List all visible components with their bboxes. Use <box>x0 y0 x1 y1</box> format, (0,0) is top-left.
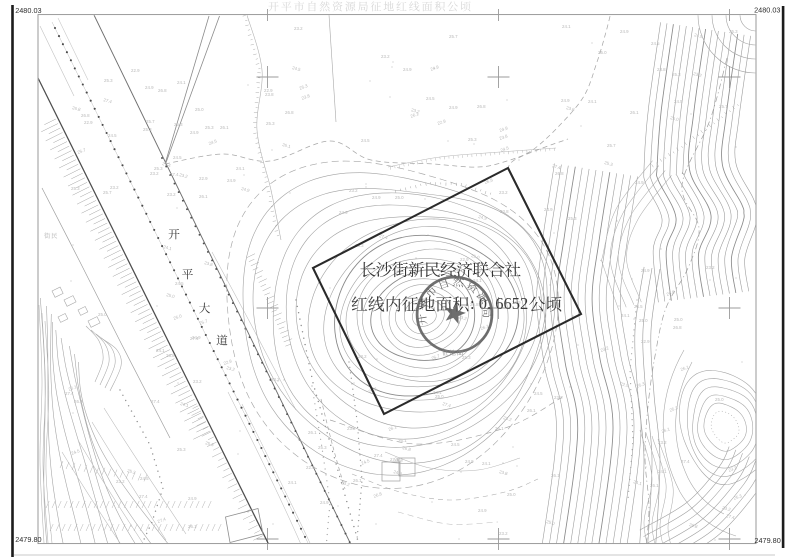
svg-text:26.1: 26.1 <box>388 424 398 432</box>
svg-text:25.0: 25.0 <box>507 492 516 497</box>
svg-text:24.5: 24.5 <box>173 155 182 160</box>
svg-text:24.1: 24.1 <box>288 480 297 485</box>
svg-text:22.9: 22.9 <box>437 118 447 126</box>
svg-text:25.3: 25.3 <box>604 160 614 167</box>
svg-text:24.1: 24.1 <box>633 479 643 486</box>
svg-text:22.9: 22.9 <box>460 257 469 262</box>
svg-text:24.5: 24.5 <box>426 96 435 101</box>
svg-text:25.3: 25.3 <box>468 137 477 142</box>
svg-text:26.1: 26.1 <box>551 473 560 478</box>
svg-text:25.7: 25.7 <box>146 119 155 124</box>
svg-text:24.9: 24.9 <box>499 125 509 133</box>
svg-text:24.9: 24.9 <box>192 335 201 340</box>
svg-text:24.1: 24.1 <box>177 80 186 85</box>
svg-text:26.8: 26.8 <box>373 491 383 499</box>
svg-text:25.3: 25.3 <box>174 122 183 127</box>
svg-text:24.1: 24.1 <box>658 469 667 474</box>
svg-text:26.1: 26.1 <box>650 483 659 488</box>
svg-text:23.2: 23.2 <box>722 505 732 512</box>
svg-text:22.9: 22.9 <box>306 465 315 470</box>
svg-text:26.8: 26.8 <box>166 353 175 358</box>
svg-text:25.3: 25.3 <box>462 355 471 360</box>
svg-text:27.4: 27.4 <box>157 516 167 524</box>
svg-text:24.9: 24.9 <box>635 180 644 185</box>
svg-text:25.0: 25.0 <box>395 195 404 200</box>
svg-text:25.3: 25.3 <box>568 216 577 221</box>
svg-text:26.1: 26.1 <box>680 364 690 372</box>
svg-text:25.0: 25.0 <box>98 312 107 317</box>
svg-text:24.9: 24.9 <box>190 130 199 135</box>
svg-text:27.4: 27.4 <box>103 97 113 104</box>
svg-text:24.9: 24.9 <box>372 195 381 200</box>
svg-text:24.1: 24.1 <box>588 99 597 104</box>
svg-text:25.0: 25.0 <box>166 292 176 299</box>
svg-text:26.1: 26.1 <box>188 524 197 529</box>
svg-text:24.9: 24.9 <box>227 178 236 183</box>
svg-text:23.2: 23.2 <box>706 265 715 270</box>
svg-text:23.8: 23.8 <box>657 67 666 72</box>
svg-text:23.2: 23.2 <box>341 480 351 487</box>
svg-text:25.0: 25.0 <box>598 50 607 55</box>
svg-text:24.9: 24.9 <box>241 186 251 193</box>
svg-text:25.3: 25.3 <box>104 78 113 83</box>
svg-text:24.1: 24.1 <box>433 390 442 395</box>
svg-text:26.1: 26.1 <box>398 438 407 443</box>
svg-text:23.2: 23.2 <box>271 377 280 382</box>
svg-text:25.0: 25.0 <box>639 318 648 323</box>
svg-text:25.3: 25.3 <box>177 447 186 452</box>
svg-text:26.1: 26.1 <box>220 125 229 130</box>
svg-text:22.9: 22.9 <box>84 120 93 125</box>
svg-text:23.2: 23.2 <box>116 479 125 484</box>
svg-text:24.9: 24.9 <box>188 496 197 501</box>
svg-text:24.1: 24.1 <box>156 348 165 353</box>
svg-text:24.5: 24.5 <box>634 304 643 309</box>
svg-text:24.5: 24.5 <box>360 458 370 466</box>
svg-text:23.2: 23.2 <box>150 171 159 176</box>
svg-text:26.8: 26.8 <box>402 445 412 452</box>
svg-text:24.5: 24.5 <box>534 391 543 396</box>
svg-text:23.2: 23.2 <box>499 531 508 536</box>
svg-text:24.9: 24.9 <box>145 85 154 90</box>
svg-text:26.1: 26.1 <box>199 194 208 199</box>
svg-text:24.5: 24.5 <box>292 65 302 72</box>
svg-text:26.1: 26.1 <box>495 426 504 431</box>
svg-text:23.2: 23.2 <box>358 354 367 359</box>
svg-text:23.2: 23.2 <box>554 395 563 400</box>
svg-text:23.2: 23.2 <box>347 426 356 431</box>
svg-text:23.2: 23.2 <box>693 71 703 78</box>
svg-text:25.3: 25.3 <box>318 445 327 450</box>
svg-text:23.2: 23.2 <box>381 54 390 59</box>
svg-text:23.2: 23.2 <box>349 188 358 193</box>
svg-text:25.7: 25.7 <box>199 318 209 326</box>
svg-text:24.5: 24.5 <box>208 138 218 146</box>
svg-text:24.1: 24.1 <box>562 24 571 29</box>
svg-text:2479.80: 2479.80 <box>15 535 41 544</box>
svg-text:25.0: 25.0 <box>674 317 683 322</box>
svg-text:23.8: 23.8 <box>500 209 509 214</box>
svg-text:25.7: 25.7 <box>607 143 616 148</box>
svg-text:25.3: 25.3 <box>729 29 738 34</box>
svg-text:24.9: 24.9 <box>478 508 487 513</box>
svg-text:23.2: 23.2 <box>499 190 508 195</box>
svg-text:24.5: 24.5 <box>175 281 184 286</box>
svg-text:: 0. 6652: : 0. 6652 <box>470 294 528 313</box>
svg-text:26.1: 26.1 <box>527 408 536 413</box>
svg-text:26.8: 26.8 <box>555 171 564 176</box>
svg-text:2480.03: 2480.03 <box>754 5 780 14</box>
svg-text:27.4: 27.4 <box>374 453 383 458</box>
svg-text:27.4: 27.4 <box>442 401 452 408</box>
svg-text:24.9: 24.9 <box>620 29 629 34</box>
svg-text:25.3: 25.3 <box>672 72 681 77</box>
svg-text:24.1: 24.1 <box>482 461 491 466</box>
svg-text:26.8: 26.8 <box>72 105 82 112</box>
svg-text:27.4: 27.4 <box>681 459 690 464</box>
svg-text:24.9: 24.9 <box>478 214 488 221</box>
svg-text:24.9: 24.9 <box>465 459 474 464</box>
svg-text:24.5: 24.5 <box>674 99 683 104</box>
svg-text:24.1: 24.1 <box>180 401 190 408</box>
svg-text:2479.80: 2479.80 <box>754 536 780 545</box>
svg-text:24.9: 24.9 <box>641 268 650 273</box>
svg-text:26.8: 26.8 <box>81 113 90 118</box>
svg-text:25.7: 25.7 <box>719 104 728 109</box>
svg-text:24.5: 24.5 <box>651 41 660 46</box>
svg-text:24.5: 24.5 <box>361 138 370 143</box>
svg-text:25.0: 25.0 <box>173 313 183 321</box>
svg-text:25.7: 25.7 <box>449 34 458 39</box>
svg-text:27.4: 27.4 <box>170 172 179 177</box>
svg-text:22.9: 22.9 <box>641 339 650 344</box>
svg-text:25.3: 25.3 <box>71 186 80 191</box>
svg-text:25.3: 25.3 <box>143 127 152 132</box>
svg-text:24.9: 24.9 <box>339 210 348 215</box>
svg-text:24.9: 24.9 <box>320 500 329 505</box>
svg-text:26.8: 26.8 <box>74 399 83 404</box>
svg-text:22.9: 22.9 <box>620 381 630 388</box>
svg-text:27.4: 27.4 <box>552 163 562 170</box>
svg-text:23.2: 23.2 <box>167 192 176 197</box>
svg-text:23.2: 23.2 <box>728 465 738 473</box>
svg-text:26.1: 26.1 <box>630 110 639 115</box>
svg-text:24.5: 24.5 <box>108 133 117 138</box>
svg-text:24.9: 24.9 <box>430 64 440 72</box>
svg-text:24.9: 24.9 <box>449 105 458 110</box>
svg-text:27.4: 27.4 <box>65 391 74 396</box>
svg-text:25.0: 25.0 <box>471 253 481 260</box>
svg-text:24.9: 24.9 <box>694 32 704 39</box>
svg-text:25.0: 25.0 <box>195 107 204 112</box>
svg-text:25.3: 25.3 <box>205 125 214 130</box>
svg-text:26.8: 26.8 <box>158 88 167 93</box>
svg-text:27.4: 27.4 <box>139 494 148 499</box>
svg-text:23.8: 23.8 <box>499 469 509 476</box>
svg-text:25.3: 25.3 <box>266 121 275 126</box>
svg-text:26.8: 26.8 <box>477 104 486 109</box>
svg-text:23.8: 23.8 <box>566 105 576 112</box>
svg-text:24.9: 24.9 <box>403 67 412 72</box>
svg-text:24.9: 24.9 <box>544 207 553 212</box>
svg-text:24.1: 24.1 <box>236 166 245 171</box>
svg-text:25.0: 25.0 <box>546 519 556 526</box>
svg-text:25.7: 25.7 <box>103 190 112 195</box>
svg-text:24.5: 24.5 <box>70 448 80 456</box>
svg-text:26.8: 26.8 <box>394 456 404 463</box>
svg-text:2480.03: 2480.03 <box>15 6 41 15</box>
svg-text:23.2: 23.2 <box>226 365 236 372</box>
svg-text:22.9: 22.9 <box>199 176 208 181</box>
svg-text:23.2: 23.2 <box>600 345 610 353</box>
svg-text:25.3: 25.3 <box>205 440 215 447</box>
svg-text:23.8: 23.8 <box>204 260 214 267</box>
svg-text:22.9: 22.9 <box>131 68 140 73</box>
svg-text:23.2: 23.2 <box>294 26 303 31</box>
svg-text:25.3: 25.3 <box>669 405 679 413</box>
svg-text:26.1: 26.1 <box>353 478 362 483</box>
svg-text:24.1: 24.1 <box>621 313 630 318</box>
svg-text:23.8: 23.8 <box>499 133 509 141</box>
svg-text:25.0: 25.0 <box>670 115 680 122</box>
svg-text:23.8: 23.8 <box>265 92 274 97</box>
svg-text:23.8: 23.8 <box>301 93 311 101</box>
svg-text:27.4: 27.4 <box>151 399 160 404</box>
svg-text:26.1: 26.1 <box>282 142 292 149</box>
svg-text:23.2: 23.2 <box>193 379 202 384</box>
svg-text:24.5: 24.5 <box>451 442 460 447</box>
svg-text:23.2: 23.2 <box>179 172 189 179</box>
svg-text:25.3: 25.3 <box>299 83 309 91</box>
svg-text:24.5: 24.5 <box>140 476 149 481</box>
svg-text:26.8: 26.8 <box>285 110 294 115</box>
svg-text:24.9: 24.9 <box>561 98 570 103</box>
svg-text:26.8: 26.8 <box>673 325 682 330</box>
svg-text:25.7: 25.7 <box>77 147 87 155</box>
svg-text:26.1: 26.1 <box>661 426 671 434</box>
svg-text:27.4: 27.4 <box>162 161 172 168</box>
svg-text:23.2: 23.2 <box>658 440 667 445</box>
svg-text:25.0: 25.0 <box>715 397 724 402</box>
svg-text:26.1: 26.1 <box>308 430 317 435</box>
